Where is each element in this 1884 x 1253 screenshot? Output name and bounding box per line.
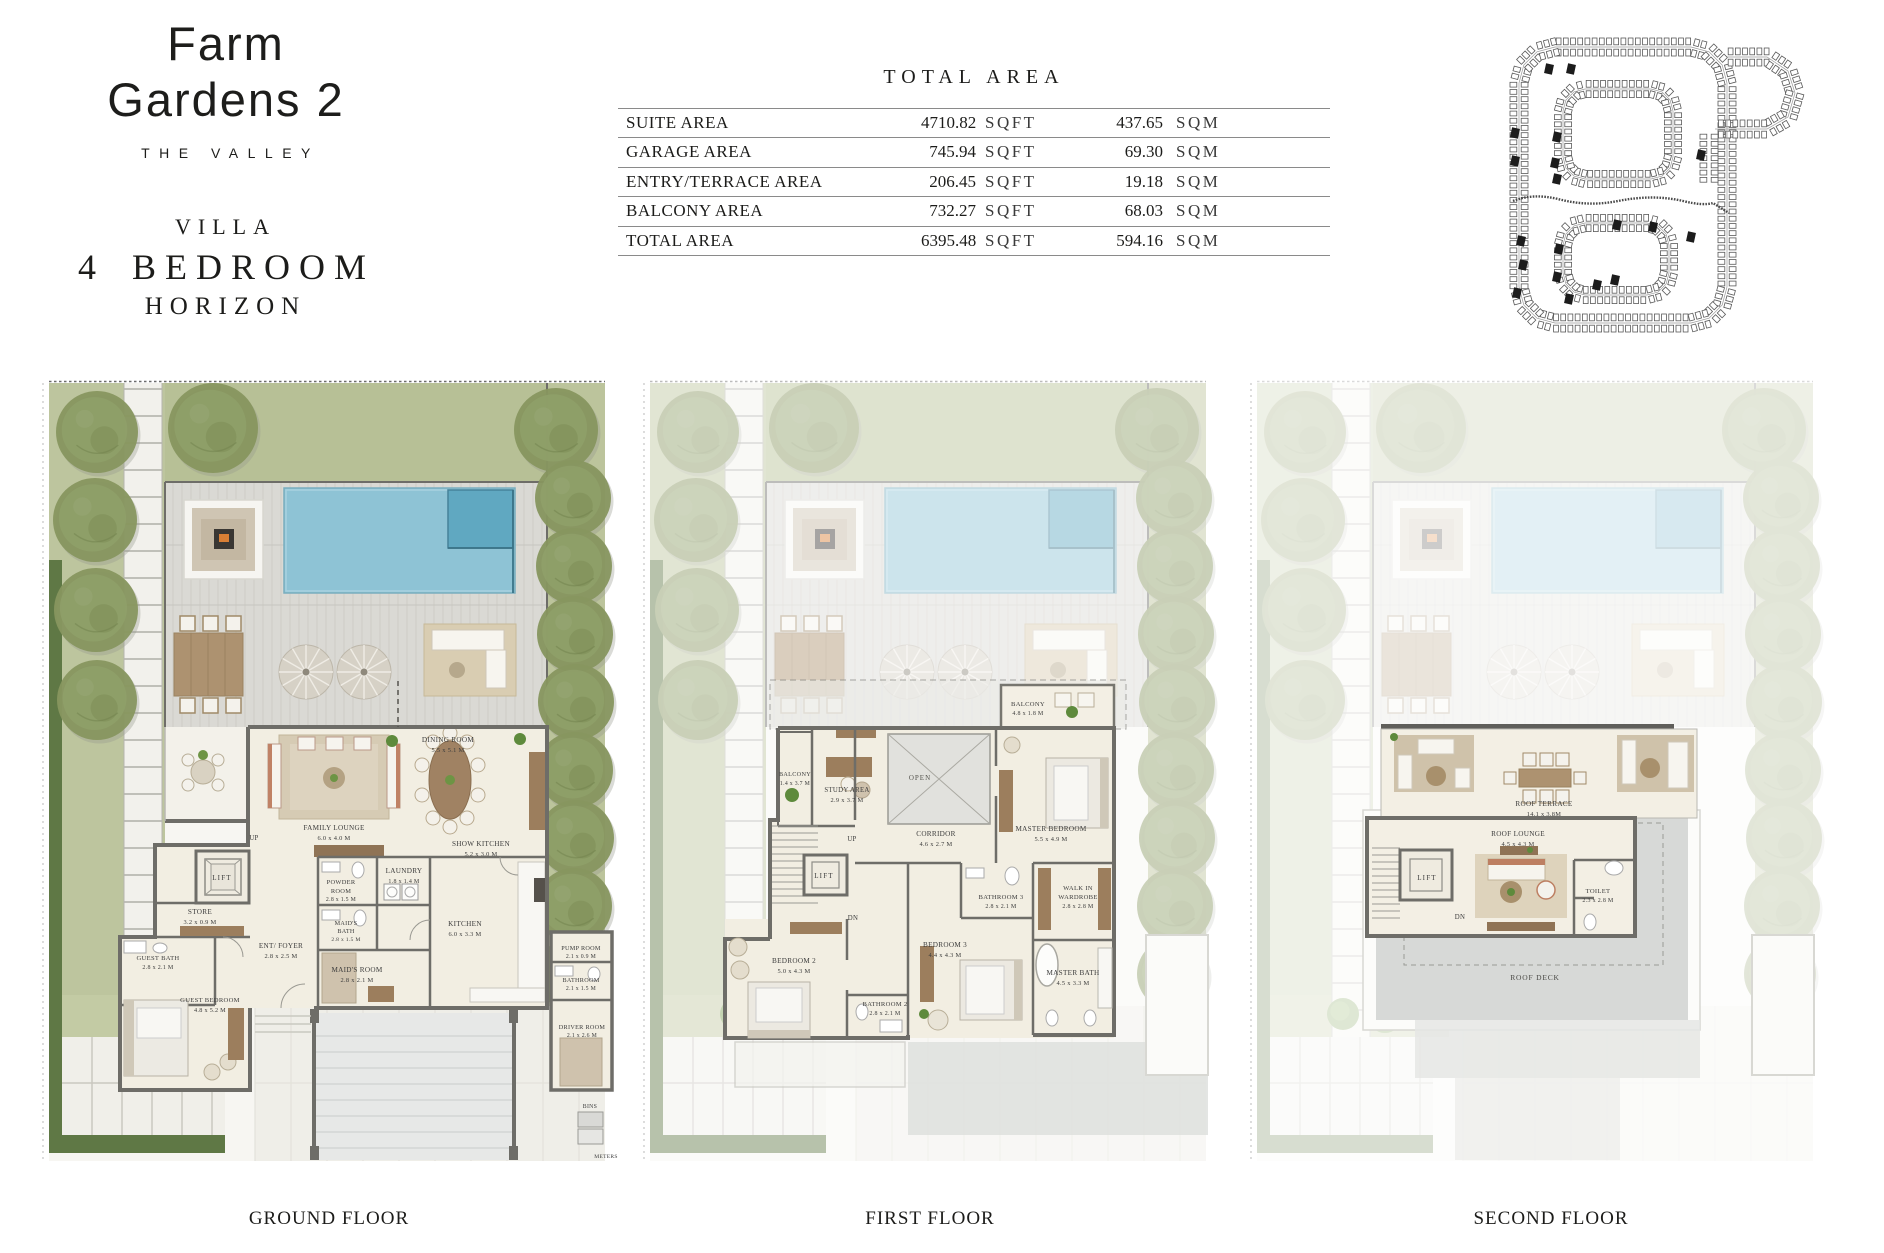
svg-text:MAID'S: MAID'S <box>335 920 358 927</box>
svg-text:STUDY AREA: STUDY AREA <box>824 787 869 794</box>
svg-text:WARDROBE: WARDROBE <box>1058 894 1097 901</box>
svg-text:14.1 x 3.8M: 14.1 x 3.8M <box>1527 811 1562 818</box>
svg-text:5.5 x 4.9 M: 5.5 x 4.9 M <box>1035 836 1068 843</box>
svg-text:2.8 x 2.5 M: 2.8 x 2.5 M <box>265 953 298 960</box>
svg-text:BEDROOM 2: BEDROOM 2 <box>772 957 816 965</box>
svg-text:BATHROOM 2: BATHROOM 2 <box>863 1001 908 1008</box>
svg-text:2.8 x 2.8 M: 2.8 x 2.8 M <box>1062 904 1093 910</box>
svg-text:5.0 x 4.3 M: 5.0 x 4.3 M <box>778 968 811 975</box>
svg-text:BATH: BATH <box>337 928 355 935</box>
svg-text:4.4 x 4.3 M: 4.4 x 4.3 M <box>929 952 962 959</box>
svg-text:GUEST BEDROOM: GUEST BEDROOM <box>180 997 240 1004</box>
svg-text:2.3 x 2.8 M: 2.3 x 2.8 M <box>1582 898 1613 904</box>
svg-text:MASTER BEDROOM: MASTER BEDROOM <box>1015 825 1086 833</box>
svg-text:BALCONY: BALCONY <box>1011 701 1045 708</box>
svg-text:1.4 x 3.7 M: 1.4 x 3.7 M <box>780 781 810 787</box>
svg-text:STORE: STORE <box>188 908 212 916</box>
svg-text:WALK IN: WALK IN <box>1063 885 1093 892</box>
svg-text:BINS: BINS <box>583 1104 597 1110</box>
svg-text:3.2 x 0.9 M: 3.2 x 0.9 M <box>184 919 217 926</box>
svg-text:UP: UP <box>847 836 856 843</box>
svg-text:BATHROOM 3: BATHROOM 3 <box>979 894 1024 901</box>
svg-text:UP: UP <box>249 835 258 842</box>
svg-text:METERS: METERS <box>594 1154 618 1160</box>
svg-text:2.1 x 1.5 M: 2.1 x 1.5 M <box>566 986 596 992</box>
svg-text:CORRIDOR: CORRIDOR <box>916 830 956 838</box>
svg-text:LIFT: LIFT <box>1417 874 1437 882</box>
svg-text:ENT/ FOYER: ENT/ FOYER <box>259 942 303 950</box>
svg-text:5.2 x 3.0 M: 5.2 x 3.0 M <box>465 851 498 858</box>
svg-text:2.8 x 2.1 M: 2.8 x 2.1 M <box>341 977 374 984</box>
svg-text:SHOW KITCHEN: SHOW KITCHEN <box>452 840 510 848</box>
svg-text:ROOF DECK: ROOF DECK <box>1510 973 1560 982</box>
svg-text:LAUNDRY: LAUNDRY <box>386 867 423 875</box>
svg-text:2.8 x 1.5 M: 2.8 x 1.5 M <box>331 937 360 943</box>
svg-text:FAMILY LOUNGE: FAMILY LOUNGE <box>303 824 365 832</box>
svg-text:6.0 x 3.3 M: 6.0 x 3.3 M <box>449 931 482 938</box>
svg-text:2.8 x 2.1 M: 2.8 x 2.1 M <box>142 965 173 971</box>
svg-text:MASTER BATH: MASTER BATH <box>1046 969 1099 977</box>
svg-text:BEDROOM 3: BEDROOM 3 <box>923 941 967 949</box>
svg-text:BALCONY: BALCONY <box>779 771 811 778</box>
svg-text:5.5 x 5.1 M: 5.5 x 5.1 M <box>432 747 465 754</box>
svg-text:MAID'S ROOM: MAID'S ROOM <box>331 966 382 974</box>
svg-text:ROOM: ROOM <box>331 888 351 895</box>
svg-text:4.8 x 1.8 M: 4.8 x 1.8 M <box>1012 711 1043 717</box>
svg-text:DN: DN <box>1455 914 1465 921</box>
svg-text:4.5 x 4.3 M: 4.5 x 4.3 M <box>1502 841 1535 848</box>
svg-text:4.8 x 5.2 M: 4.8 x 5.2 M <box>194 1007 226 1014</box>
svg-text:KITCHEN: KITCHEN <box>448 920 482 928</box>
svg-text:DRIVER ROOM: DRIVER ROOM <box>559 1024 606 1031</box>
svg-text:4.6 x 2.7 M: 4.6 x 2.7 M <box>920 841 953 848</box>
svg-text:BATHROOM: BATHROOM <box>562 977 599 984</box>
svg-text:2.1 x 0.9 M: 2.1 x 0.9 M <box>566 954 596 960</box>
svg-text:POWDER: POWDER <box>327 879 356 886</box>
svg-text:LIFT: LIFT <box>814 872 834 880</box>
svg-text:2.1 x 2.6 M: 2.1 x 2.6 M <box>567 1033 597 1039</box>
svg-text:LIFT: LIFT <box>212 874 232 882</box>
svg-text:2.8 x 2.1 M: 2.8 x 2.1 M <box>985 904 1016 910</box>
svg-text:DN: DN <box>848 915 858 922</box>
svg-text:6.0 x 4.0 M: 6.0 x 4.0 M <box>318 835 351 842</box>
svg-text:DINING ROOM: DINING ROOM <box>422 736 475 744</box>
svg-text:OPEN: OPEN <box>909 774 931 782</box>
svg-text:2.8 x 2.1 M: 2.8 x 2.1 M <box>869 1011 900 1017</box>
svg-text:ROOF LOUNGE: ROOF LOUNGE <box>1491 830 1545 838</box>
svg-text:1.8 x 1.4 M: 1.8 x 1.4 M <box>388 879 419 885</box>
svg-text:2.9 x 3.7 M: 2.9 x 3.7 M <box>831 797 864 804</box>
svg-text:2.8 x 1.5 M: 2.8 x 1.5 M <box>326 897 356 903</box>
svg-text:TOILET: TOILET <box>1586 888 1611 895</box>
svg-text:4.5 x 3.3 M: 4.5 x 3.3 M <box>1057 980 1090 987</box>
svg-text:GUEST BATH: GUEST BATH <box>137 955 180 962</box>
svg-text:PUMP ROOM: PUMP ROOM <box>561 945 601 952</box>
svg-text:ROOF TERRACE: ROOF TERRACE <box>1515 800 1572 808</box>
